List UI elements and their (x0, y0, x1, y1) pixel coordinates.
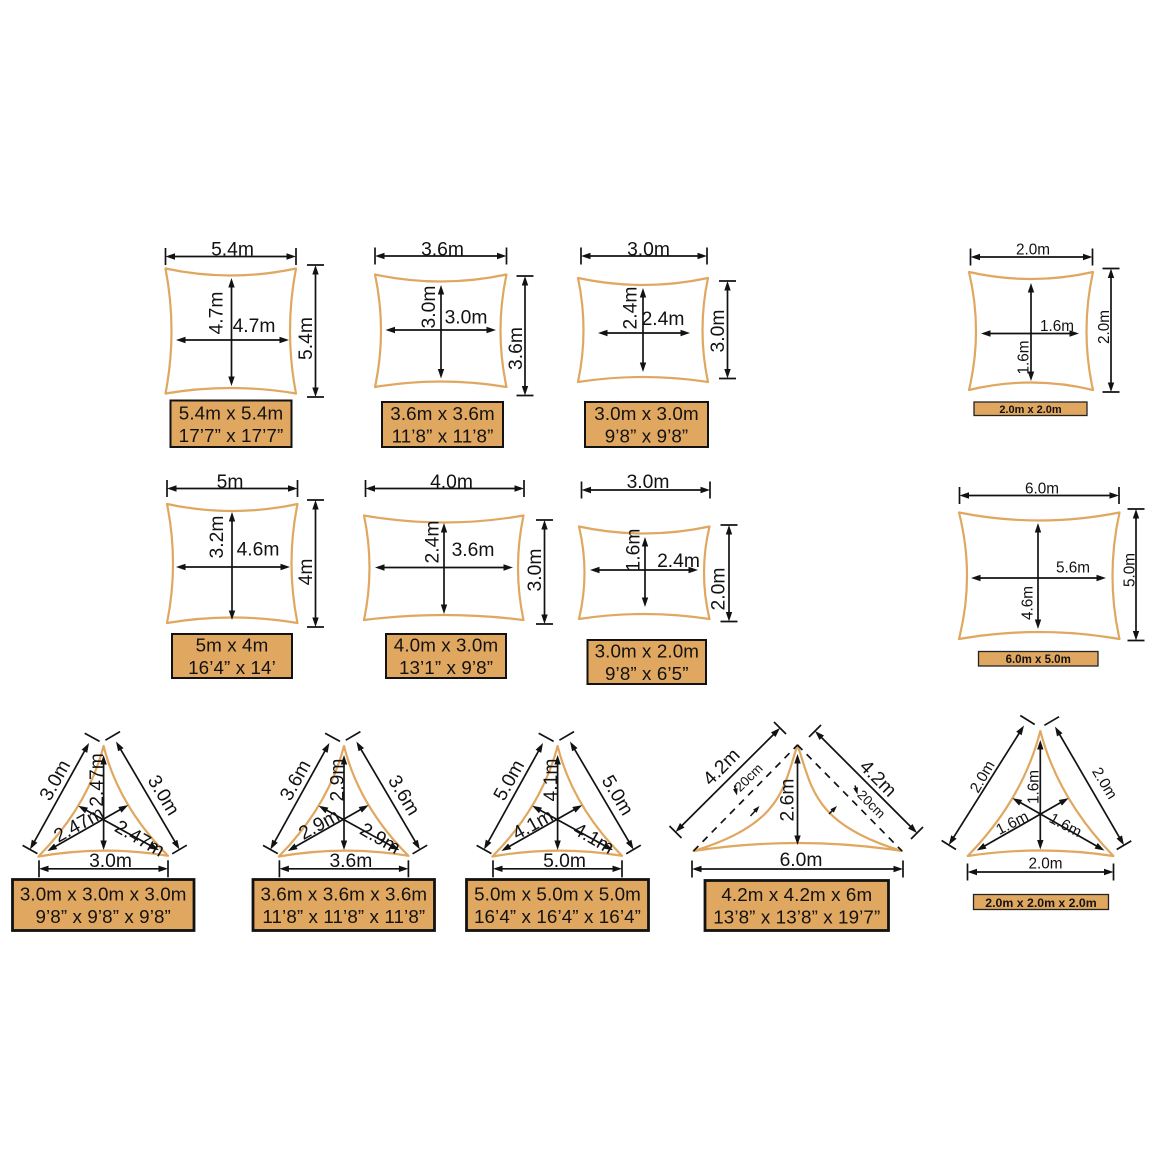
svg-text:16’4” x 14’: 16’4” x 14’ (188, 657, 276, 678)
svg-text:3.2m: 3.2m (207, 516, 228, 559)
svg-text:4.0m x 3.0m: 4.0m x 3.0m (394, 635, 498, 656)
svg-text:5.0m: 5.0m (490, 757, 529, 805)
svg-text:3.6m: 3.6m (421, 239, 464, 260)
svg-text:4.0m: 4.0m (430, 472, 473, 493)
svg-text:3.0m x 3.0m: 3.0m x 3.0m (594, 403, 698, 424)
svg-text:5m x 4m: 5m x 4m (196, 635, 269, 656)
svg-text:5.0m: 5.0m (1121, 553, 1138, 587)
svg-text:3.6m: 3.6m (452, 540, 495, 561)
svg-text:1.6m: 1.6m (993, 808, 1031, 839)
svg-text:2.0m: 2.0m (967, 758, 999, 796)
svg-text:5m: 5m (217, 472, 244, 493)
svg-text:4.6m: 4.6m (237, 539, 280, 560)
svg-text:3.6m x 3.6m: 3.6m x 3.6m (390, 403, 494, 424)
svg-text:2.4m: 2.4m (422, 521, 443, 564)
svg-text:4.6m: 4.6m (1019, 586, 1036, 620)
svg-text:2.0m x 2.0m x 2.0m: 2.0m x 2.0m x 2.0m (985, 896, 1096, 910)
svg-text:3.0m: 3.0m (36, 757, 75, 805)
svg-text:4m: 4m (296, 559, 317, 586)
svg-text:5.4m: 5.4m (211, 239, 254, 260)
svg-text:3.0m: 3.0m (627, 472, 670, 493)
svg-text:6.0m: 6.0m (1025, 481, 1059, 498)
svg-text:2.47m: 2.47m (87, 753, 108, 807)
svg-text:17’7” x 17’7”: 17’7” x 17’7” (179, 425, 284, 446)
svg-text:3.6m: 3.6m (276, 757, 315, 805)
svg-text:9’8” x 6’5”: 9’8” x 6’5” (605, 663, 689, 684)
svg-text:13’8” x 13’8” x 19’7”: 13’8” x 13’8” x 19’7” (713, 907, 880, 928)
svg-text:2.47m: 2.47m (51, 803, 108, 847)
svg-text:11’8” x 11’8”: 11’8” x 11’8” (392, 426, 494, 447)
svg-text:4.7m: 4.7m (233, 316, 276, 337)
svg-text:2.6m: 2.6m (777, 779, 798, 822)
svg-text:2.4m: 2.4m (657, 551, 700, 572)
svg-text:2.0m: 2.0m (1028, 855, 1062, 872)
svg-text:5.0m: 5.0m (597, 772, 637, 820)
svg-text:3.6m: 3.6m (506, 327, 527, 370)
svg-text:2.4m: 2.4m (642, 309, 685, 330)
svg-text:9’8” x 9’8”: 9’8” x 9’8” (605, 426, 689, 447)
svg-text:1.6m: 1.6m (1015, 340, 1032, 374)
svg-text:2.0m: 2.0m (1016, 242, 1050, 259)
svg-text:2.9m: 2.9m (296, 806, 344, 845)
svg-text:16’4” x 16’4” x 16’4”: 16’4” x 16’4” x 16’4” (474, 906, 641, 927)
svg-text:2.9m: 2.9m (327, 759, 348, 802)
svg-text:4.2m x 4.2m x 6m: 4.2m x 4.2m x 6m (721, 884, 872, 905)
svg-text:3.0m: 3.0m (708, 310, 729, 353)
svg-text:3.6m: 3.6m (383, 772, 423, 820)
svg-text:1.6m: 1.6m (1040, 318, 1074, 335)
svg-text:4.7m: 4.7m (206, 292, 227, 335)
svg-text:9’8” x 9’8” x 9’8”: 9’8” x 9’8” x 9’8” (35, 906, 170, 927)
svg-text:2.0m: 2.0m (1088, 764, 1120, 802)
svg-text:2.0m x 2.0m: 2.0m x 2.0m (999, 404, 1062, 416)
svg-text:3.0m: 3.0m (143, 772, 183, 820)
svg-text:4.1m: 4.1m (541, 759, 562, 802)
svg-text:13’1” x 9’8”: 13’1” x 9’8” (399, 657, 493, 678)
svg-text:3.0m: 3.0m (419, 286, 440, 329)
svg-text:3.6m x 3.6m x 3.6m: 3.6m x 3.6m x 3.6m (260, 884, 427, 905)
svg-text:5.0m: 5.0m (543, 851, 586, 872)
svg-text:6.0m: 6.0m (780, 850, 823, 871)
svg-text:5.6m: 5.6m (1056, 559, 1090, 576)
svg-text:3.0m: 3.0m (525, 549, 546, 592)
svg-text:1.6m: 1.6m (623, 529, 644, 572)
svg-text:5.4m: 5.4m (296, 317, 317, 360)
svg-text:2.0m: 2.0m (1096, 310, 1113, 344)
svg-text:2.4m: 2.4m (620, 287, 641, 330)
svg-text:3.0m: 3.0m (627, 239, 670, 260)
svg-text:3.0m: 3.0m (445, 307, 488, 328)
svg-text:3.6m: 3.6m (329, 851, 372, 872)
svg-text:3.0m x 2.0m: 3.0m x 2.0m (595, 641, 699, 662)
svg-text:1.6m: 1.6m (1025, 770, 1042, 804)
svg-text:11’8” x 11’8” x 11’8”: 11’8” x 11’8” x 11’8” (262, 906, 425, 927)
svg-text:6.0m x 5.0m: 6.0m x 5.0m (1006, 654, 1071, 666)
svg-text:4.1m: 4.1m (509, 806, 557, 845)
svg-text:2.0m: 2.0m (708, 568, 729, 611)
svg-text:5.4m x 5.4m: 5.4m x 5.4m (179, 402, 283, 423)
svg-text:3.0m x 3.0m x 3.0m: 3.0m x 3.0m x 3.0m (20, 884, 187, 905)
svg-text:5.0m x 5.0m x 5.0m: 5.0m x 5.0m x 5.0m (474, 884, 641, 905)
svg-text:3.0m: 3.0m (89, 851, 132, 872)
